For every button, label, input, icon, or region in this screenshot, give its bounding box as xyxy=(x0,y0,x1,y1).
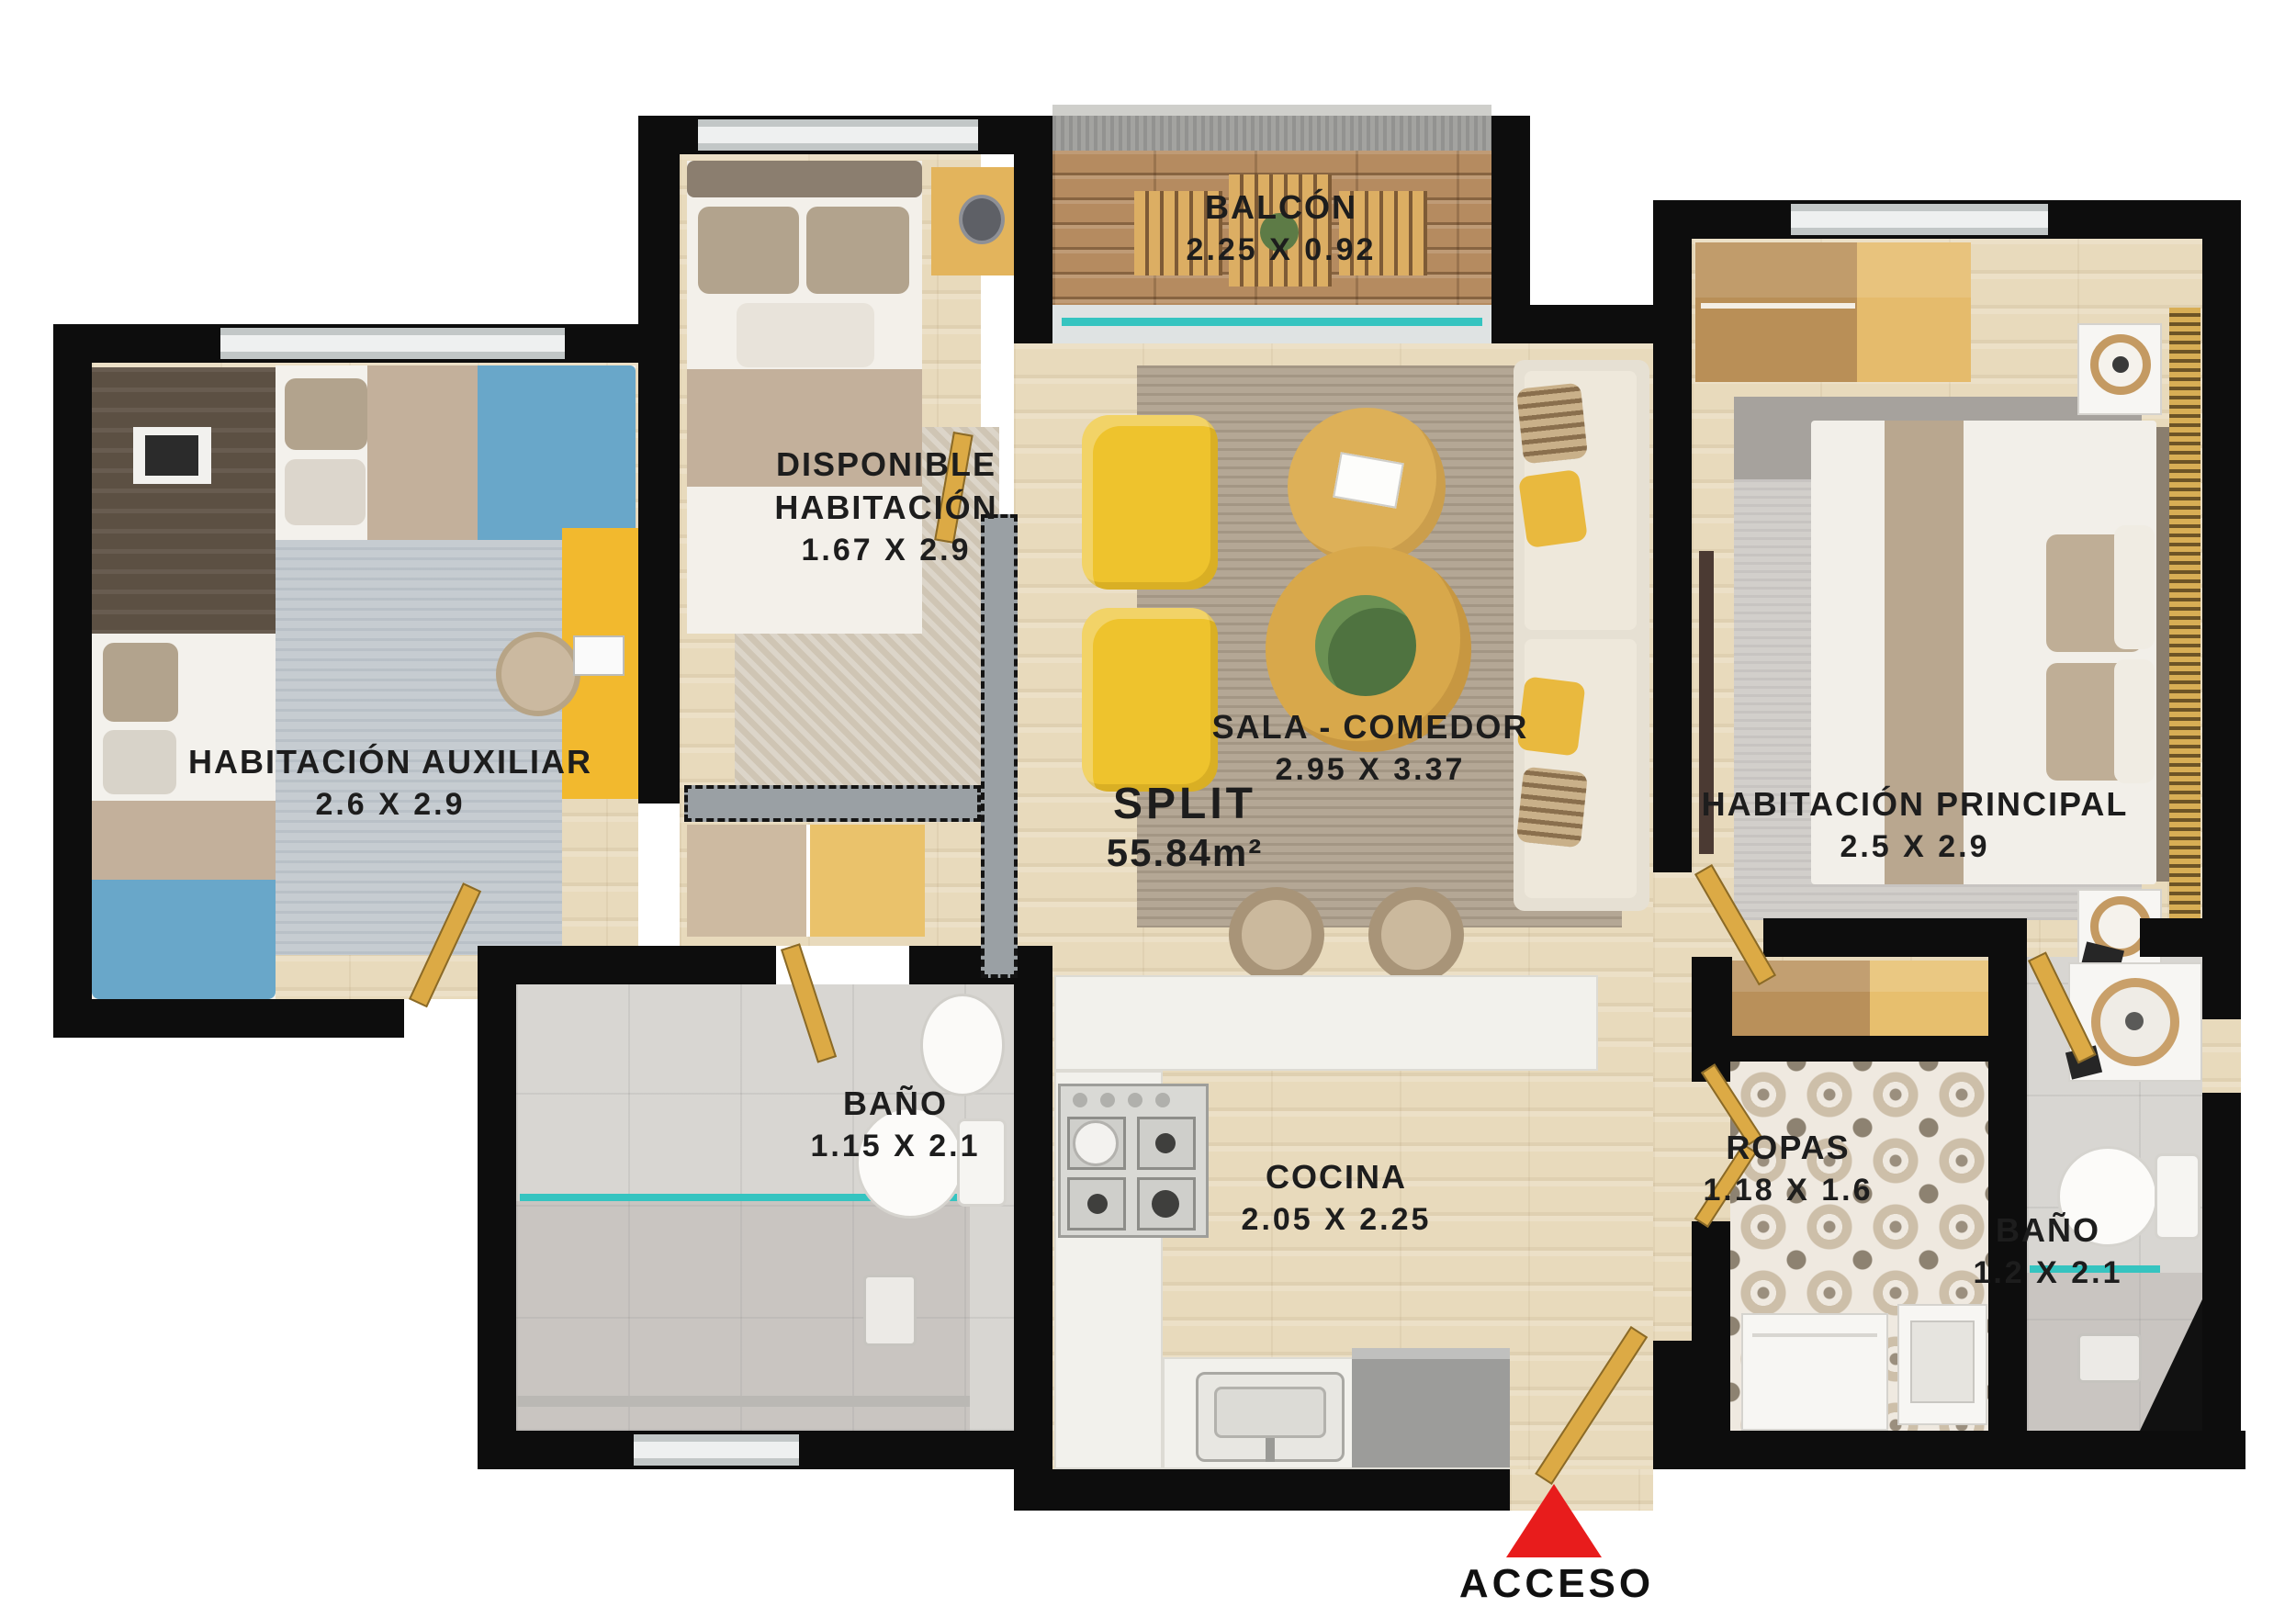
faucet xyxy=(1266,1438,1275,1462)
wall xyxy=(478,946,516,1469)
laundry-sink-basin xyxy=(1910,1320,1975,1403)
pillow-striped xyxy=(1516,383,1588,465)
wall xyxy=(1692,1431,2245,1469)
wall xyxy=(1014,946,1052,1511)
label-unit: SPLIT 55.84m² xyxy=(1038,779,1332,876)
dresser-hall-right xyxy=(806,825,925,937)
bar-stool-1 xyxy=(1229,887,1324,983)
wardrobe-principal xyxy=(1695,242,1971,382)
shower-fixture-left xyxy=(863,1275,917,1346)
wall xyxy=(1491,305,1692,343)
unit-area: 55.84m² xyxy=(1038,830,1332,876)
floor-plan: BALCÓN 2.25 X 0.92 DISPONIBLE HABITACIÓN… xyxy=(0,0,2296,1607)
label-balcon: BALCÓN 2.25 X 0.92 xyxy=(1116,185,1446,271)
wall xyxy=(53,999,404,1038)
window-disponible xyxy=(698,119,978,151)
access-label: ACCESO xyxy=(1428,1561,1685,1607)
stove-knob xyxy=(1128,1093,1142,1107)
pillow xyxy=(698,207,799,294)
label-disponible: DISPONIBLE HABITACIÓN 1.67 X 2.9 xyxy=(726,443,1047,571)
label-ropas: ROPAS 1.18 X 1.6 xyxy=(1664,1126,1912,1211)
stove-knob xyxy=(1100,1093,1115,1107)
burner-ring xyxy=(1155,1133,1176,1153)
label-principal: HABITACIÓN PRINCIPAL 2.5 X 2.9 xyxy=(1676,782,2154,868)
magazine-cover xyxy=(145,435,198,476)
window-blind-band-principal xyxy=(2169,308,2200,950)
wall xyxy=(1014,116,1052,343)
wall xyxy=(1692,1036,2025,1062)
room-name: BALCÓN xyxy=(1116,185,1446,229)
room-name: SALA - COMEDOR xyxy=(1177,705,1563,748)
room-name: HABITACIÓN PRINCIPAL xyxy=(1676,782,2154,826)
balcony-railing-cap xyxy=(1052,105,1491,116)
bed-auxiliar-top-blanket-blue xyxy=(478,365,636,540)
bed-principal-headboard xyxy=(2156,427,2169,882)
kitchen-sink-basin xyxy=(1214,1387,1326,1438)
counter-breakfast-bar xyxy=(1054,975,1598,1071)
burner-ring xyxy=(1087,1194,1108,1214)
pillow xyxy=(806,207,909,294)
sliding-door-glass xyxy=(1062,318,1482,326)
pillow xyxy=(2114,659,2155,783)
wall xyxy=(2202,1093,2241,1433)
room-name: BAÑO xyxy=(1929,1208,2167,1252)
lamp xyxy=(959,195,1005,244)
pillow xyxy=(285,459,366,525)
room-name: COCINA xyxy=(1180,1155,1492,1198)
label-bano-der: BAÑO 1.2 X 2.1 xyxy=(1929,1208,2167,1294)
pillow xyxy=(103,643,178,722)
pillow-yellow xyxy=(1518,469,1588,548)
access-arrow-icon xyxy=(1506,1484,1602,1557)
bed-auxiliar-top-blanket-beige xyxy=(367,365,487,540)
room-dims: 2.6 X 2.9 xyxy=(152,783,629,826)
unit-name: SPLIT xyxy=(1038,779,1332,830)
shower-fixture-right xyxy=(2077,1333,2142,1383)
room-dims: 2.05 X 2.25 xyxy=(1180,1198,1492,1241)
room-name: HABITACIÓN xyxy=(726,486,1047,529)
armchair-yellow-1 xyxy=(1082,415,1218,590)
washer-lid-line xyxy=(1752,1333,1877,1337)
wall xyxy=(478,946,776,984)
laptop xyxy=(573,635,625,676)
shower-threshold-left xyxy=(516,1396,970,1407)
bed-disponible-headboard xyxy=(687,161,922,197)
wall xyxy=(638,363,680,803)
lamp-center-dot xyxy=(2112,356,2129,373)
pillow xyxy=(2114,525,2155,649)
balcony-railing xyxy=(1052,116,1491,151)
access-text: ACCESO xyxy=(1459,1561,1654,1606)
wall xyxy=(1692,957,1732,1038)
room-dims: 1.15 X 2.1 xyxy=(776,1125,1015,1167)
appliance-gray xyxy=(1352,1348,1510,1467)
room-dims: 1.67 X 2.9 xyxy=(726,529,1047,571)
window-auxiliar xyxy=(220,328,565,359)
bar-stool-2 xyxy=(1368,887,1464,983)
wall xyxy=(1988,957,2027,1433)
basin-drain xyxy=(2125,1012,2144,1030)
room-dims: 1.18 X 1.6 xyxy=(1664,1169,1912,1211)
plant-table xyxy=(1315,595,1416,696)
label-cocina: COCINA 2.05 X 2.25 xyxy=(1180,1155,1492,1241)
future-wall-vertical xyxy=(981,514,1018,978)
room-name: DISPONIBLE xyxy=(726,443,1047,486)
wall xyxy=(53,324,92,1038)
wardrobe-shelf-line xyxy=(1701,303,1855,309)
washer xyxy=(1741,1313,1888,1431)
bed-auxiliar-left-blanket-blue xyxy=(92,880,276,999)
room-dims: 2.5 X 2.9 xyxy=(1676,826,2154,868)
room-name: ROPAS xyxy=(1664,1126,1912,1169)
pillow xyxy=(285,378,367,450)
desk-dark-auxiliar xyxy=(92,367,276,634)
wall xyxy=(1763,918,2027,957)
label-auxiliar: HABITACIÓN AUXILIAR 2.6 X 2.9 xyxy=(152,740,629,826)
burner-ring xyxy=(1152,1190,1179,1218)
stove-knob xyxy=(1155,1093,1170,1107)
chair-auxiliar xyxy=(496,632,580,716)
room-name: BAÑO xyxy=(776,1082,1015,1125)
window-principal xyxy=(1791,204,2048,235)
future-wall-horizontal xyxy=(684,785,981,822)
wall xyxy=(1653,1341,1692,1469)
window-bano-izq xyxy=(634,1434,799,1466)
room-dims: 2.25 X 0.92 xyxy=(1116,229,1446,271)
wall xyxy=(2140,918,2241,957)
wall xyxy=(1692,1221,1730,1433)
pillow xyxy=(737,303,874,367)
wall xyxy=(2202,200,2241,1019)
label-bano-izq: BAÑO 1.15 X 2.1 xyxy=(776,1082,1015,1167)
stove-knob xyxy=(1073,1093,1087,1107)
wall xyxy=(1014,1469,1510,1511)
pot xyxy=(1073,1120,1119,1166)
room-name: HABITACIÓN AUXILIAR xyxy=(152,740,629,783)
room-dims: 1.2 X 2.1 xyxy=(1929,1252,2167,1294)
